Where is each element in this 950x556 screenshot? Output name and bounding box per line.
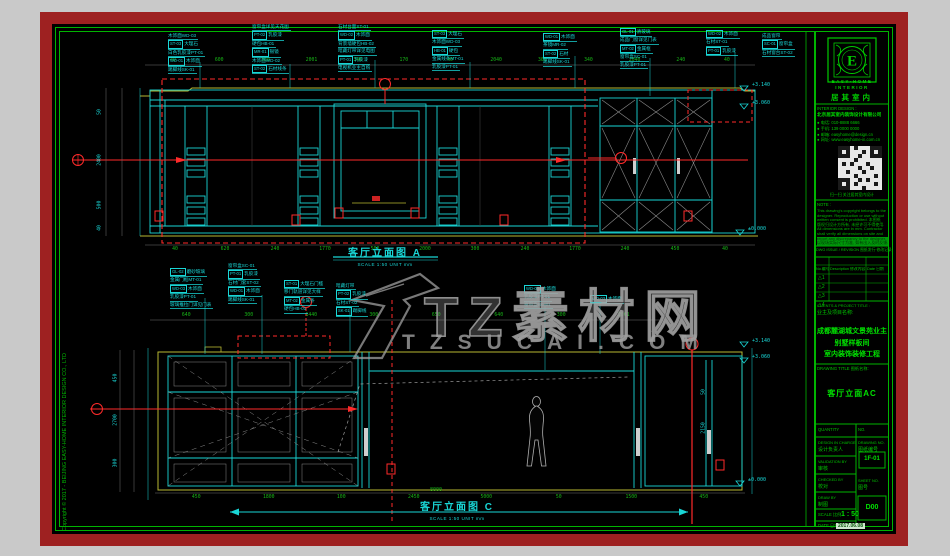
cad-sheet: E [0,0,950,556]
revision-rows: △1△2△3△4 [816,266,889,302]
draw-by-cn: 制图 [818,501,828,508]
date-value: 2017.06.08 [836,523,865,529]
qr-code [838,146,882,190]
interior-design-label: INTERIOR DESIGN : [817,106,857,111]
checked-label: CHECKED BY [818,477,843,482]
revision-row: △2 [816,275,889,284]
checked-cn: 校对 [818,483,828,490]
watermark-domain: TZSUCAI.COM [402,331,713,355]
elevation-a-scale: SCALE 1:50 UNIT mm [357,262,412,267]
drawing-no-cn: 图纸编号 [858,446,878,453]
scale-value: 1 : 50 [841,511,859,518]
qr-caption: 扫一扫 关注居其室内设计 [816,192,888,198]
sheet-no-value: D00 [858,504,886,511]
drawing-title-label: DRAWING TITLE 图纸名称: [817,366,869,372]
window-a [600,98,712,232]
clients-label-cn: 业主及项目名称: [817,309,853,316]
elev-a-glass-hatch [252,100,710,230]
elev-a-markers [72,79,752,244]
note-line: 以现场实际尺寸为准, 如有出入及时反馈. [817,241,888,246]
elev-c-wall [148,348,752,500]
project-title-line: 别墅样板间 [816,338,888,350]
draw-by-label: DRAW BY [818,495,836,500]
note-label: NOTE : [817,202,831,207]
project-lines: 成都麓湖城文景苑业主别墅样板间室内装饰装修工程 [816,326,888,361]
note-lines: This drawing's copyright belongs to thed… [817,209,888,246]
elev-a-wall [140,88,755,236]
project-title-line: 成都麓湖城文景苑业主 [816,326,888,338]
elevation-c-scale: SCALE 1:50 UNIT mm [429,516,484,521]
issue-label: DWG ISSUE / REVISION 图纸发行·修改记录 [816,248,892,253]
elevation-c-overall-dim: 8000 [430,487,442,493]
drawing-title-value: 客厅立面AC [816,388,888,399]
elevation-c-title: 客厅立面图 C [420,498,494,513]
drawing-no-value: 1F-01 [859,456,885,462]
revision-row: △1 [816,266,889,275]
logo-en-text: EASY·HOME INTERIOR [814,79,890,91]
company-name: 北京居其室内装饰设计有限公司 [817,112,881,118]
logo-en-line2: INTERIOR [814,85,890,91]
project-title-line: 室内装饰装修工程 [816,349,888,361]
contact-lines: ● 电话: 010-8888 6666● 手机: 139 0000 0000● … [817,120,880,143]
validation-label: VALIDATION BY [818,459,847,464]
drawing-no-label: DRAWING NO. [858,440,885,445]
sheet-label: SHEET NO. [858,478,879,483]
design-in-charge-label: DESIGN IN CHARGE [818,440,856,445]
elevation-a-title: 客厅立面图 A [348,244,422,259]
contact-line: ● 网址: www.easyhome-in.com.cn [817,137,880,143]
logo-letter: E [847,54,857,70]
revision-row: △4 [816,293,889,302]
elev-c-outline [158,347,742,490]
clients-label: CLIENTS & PROJECT TITLE : [817,303,870,308]
logo-cn-text: 居其室内 [814,92,890,103]
revision-row: △3 [816,284,889,293]
scale-label: SCALE 比例 [818,512,841,518]
no-label: NO. [858,427,865,432]
human-figure [527,397,546,467]
glass-door-c [168,356,358,486]
easyhome-logo: E [828,38,876,82]
quantity-label: QUANTITY [818,427,839,432]
sheet-cn: 图号 [858,484,868,491]
elev-c-glass-detail [168,356,711,486]
validation-cn: 审核 [818,465,828,472]
copyright-vertical-text: Copyright © 2017 - BEIJING EASY-HOME INT… [62,353,68,531]
design-in-charge-cn: 设计负责人 [818,446,843,453]
